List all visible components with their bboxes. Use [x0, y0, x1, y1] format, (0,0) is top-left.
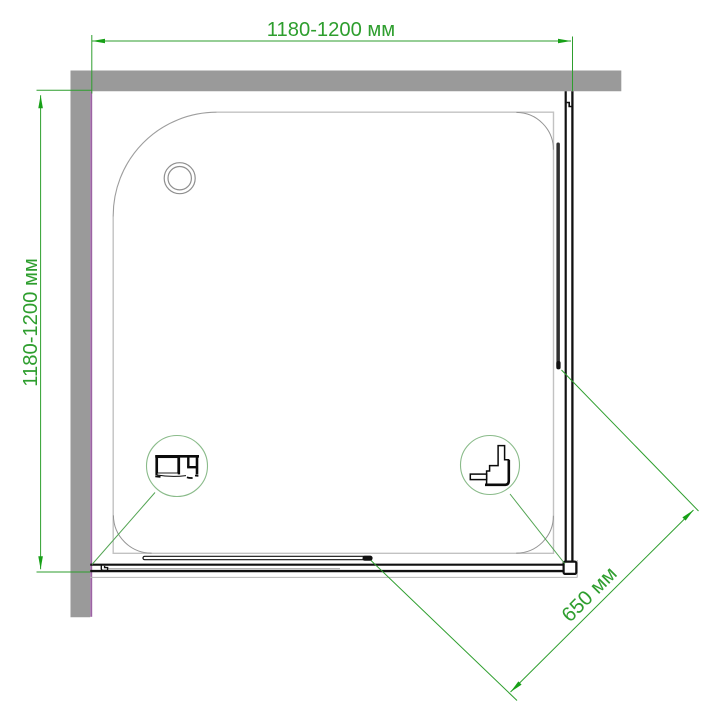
svg-text:1180-1200 мм: 1180-1200 мм	[267, 19, 395, 41]
svg-text:1180-1200 мм: 1180-1200 мм	[20, 258, 42, 386]
